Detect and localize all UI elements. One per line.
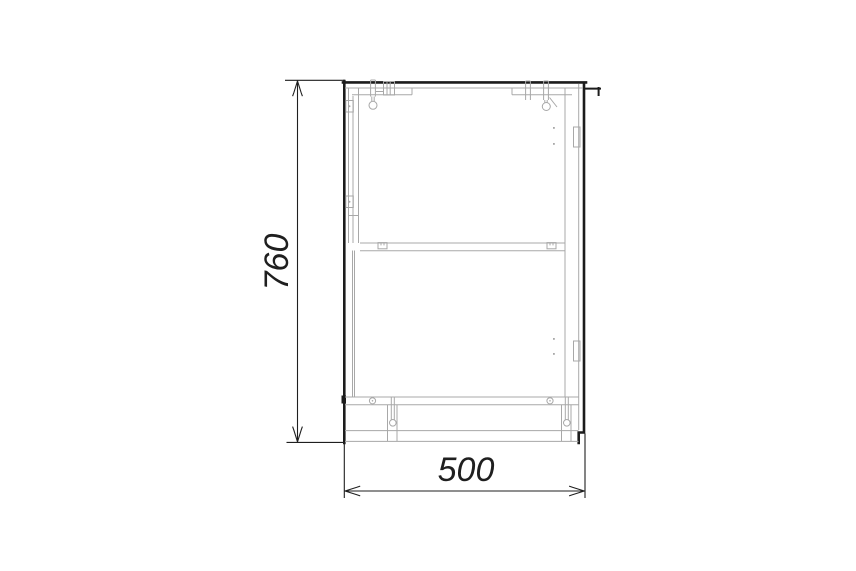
middle-shelf [360, 243, 565, 251]
plinth-base [345, 397, 579, 441]
drawing-canvas: 760 500 [0, 0, 856, 571]
shelf-clip-right [547, 243, 556, 249]
wall-hook-profile [586, 88, 600, 95]
shelf-clip-left [378, 243, 387, 249]
width-dimension-label: 500 [438, 451, 495, 489]
plinth-rail [345, 431, 579, 442]
system-hole [553, 127, 555, 129]
bracket-bolt-head-left [369, 101, 377, 109]
system-hole [553, 353, 555, 355]
hanging-bracket-right [526, 81, 557, 111]
top-rail-right-section [512, 88, 572, 95]
leg-right [562, 397, 572, 441]
dimension-width: 500 [344, 434, 585, 499]
bracket-bolt-head-right [542, 103, 550, 111]
leg-left [388, 397, 398, 441]
height-dimension-label: 760 [258, 234, 296, 291]
system-hole [553, 143, 555, 145]
cabinet-interior [345, 80, 583, 441]
system-hole [553, 338, 555, 340]
right-side-panel [553, 84, 580, 430]
leg-bolt-left [390, 420, 397, 427]
left-side-strip [346, 88, 359, 397]
cabinet-outline [342, 81, 601, 443]
cabinet-technical-drawing: 760 500 [0, 0, 856, 571]
bottom-panel [345, 397, 579, 405]
dimension-height: 760 [258, 80, 345, 442]
cabinet-door-profile [579, 85, 584, 444]
leg-bolt-right [564, 420, 571, 427]
